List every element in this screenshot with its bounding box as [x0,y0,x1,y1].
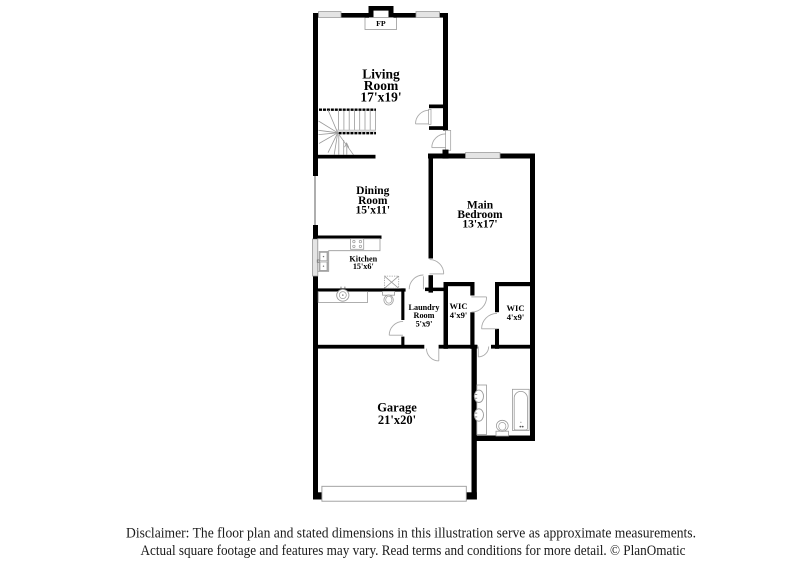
svg-text:17'x19': 17'x19' [360,89,401,104]
svg-text:15'x6': 15'x6' [353,262,374,271]
svg-text:5'x9': 5'x9' [416,320,433,329]
svg-text:FP: FP [376,19,386,28]
svg-text:21'x20': 21'x20' [378,413,416,427]
svg-text:Disclaimer: The floor plan and: Disclaimer: The floor plan and stated di… [126,526,696,542]
svg-text:13'x17': 13'x17' [462,219,497,231]
svg-text:Actual square footage and feat: Actual square footage and features may v… [141,543,686,559]
svg-text:4'x9': 4'x9' [450,310,467,320]
svg-text:4'x9': 4'x9' [507,312,524,322]
svg-text:15'x11': 15'x11' [356,205,391,217]
